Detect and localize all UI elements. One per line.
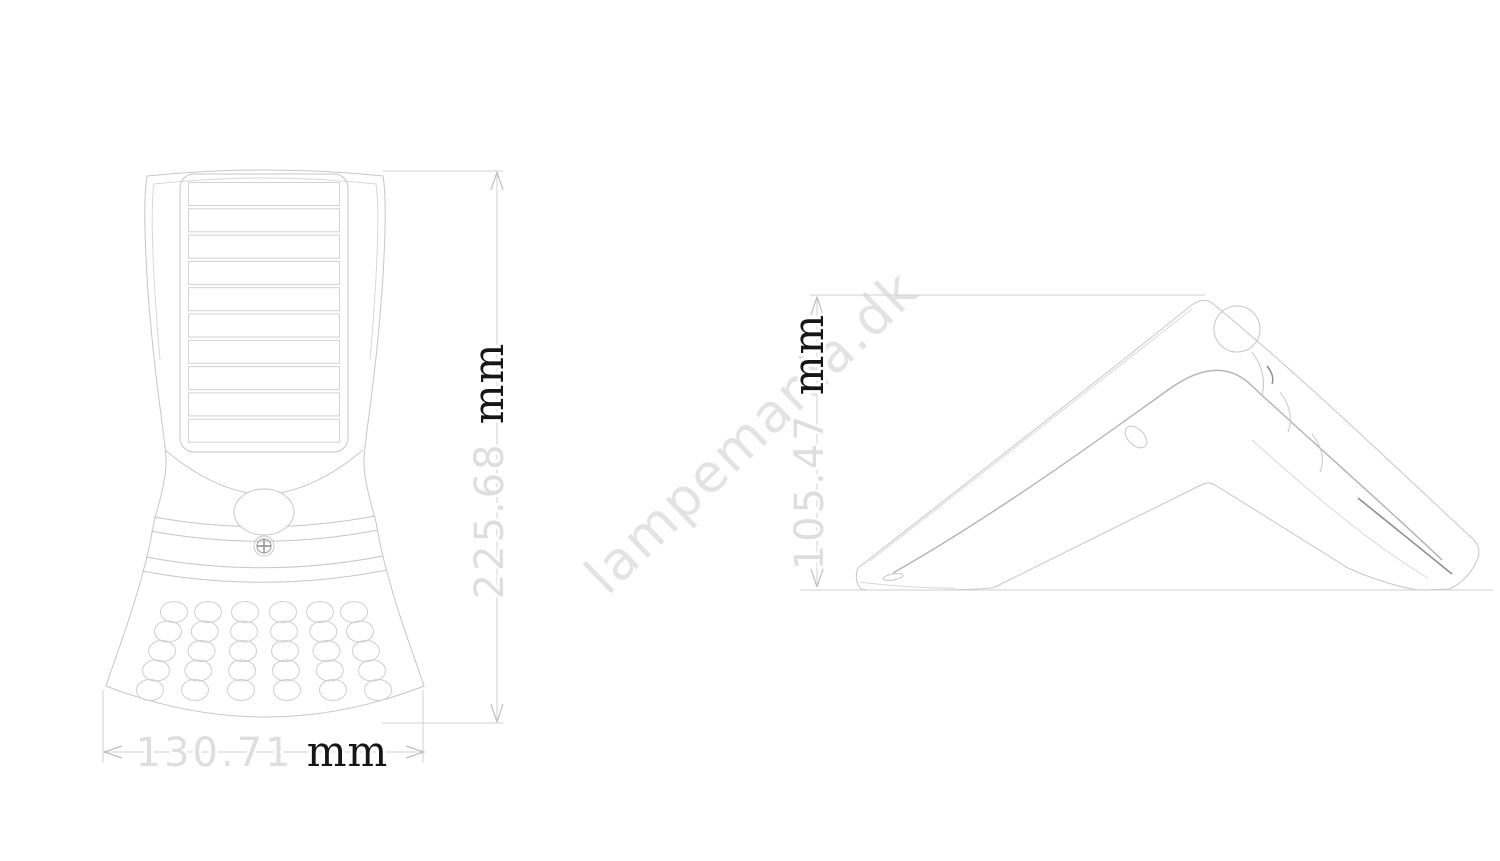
dimension-unit: mm bbox=[307, 727, 389, 776]
front-view bbox=[106, 170, 424, 717]
side-height-label: 105.47 mm bbox=[784, 314, 833, 571]
dimension-value: 130.71 bbox=[136, 730, 294, 776]
dimension-value: 225.68 bbox=[467, 441, 513, 599]
sensor-dome bbox=[234, 489, 294, 535]
drawing-canvas: lampemania.dk 225.68 bbox=[0, 0, 1500, 861]
front-height-label: 225.68 mm bbox=[464, 343, 513, 600]
side-body-outline bbox=[856, 300, 1479, 590]
dimension-unit: mm bbox=[464, 343, 513, 425]
technical-drawing: lampemania.dk 225.68 bbox=[0, 0, 1500, 861]
side-view bbox=[856, 300, 1479, 590]
front-width-label: 130.71 mm bbox=[136, 727, 389, 776]
front-body-outline bbox=[106, 170, 424, 717]
dimension-unit: mm bbox=[784, 314, 833, 396]
dimension-value: 105.47 bbox=[787, 412, 833, 570]
